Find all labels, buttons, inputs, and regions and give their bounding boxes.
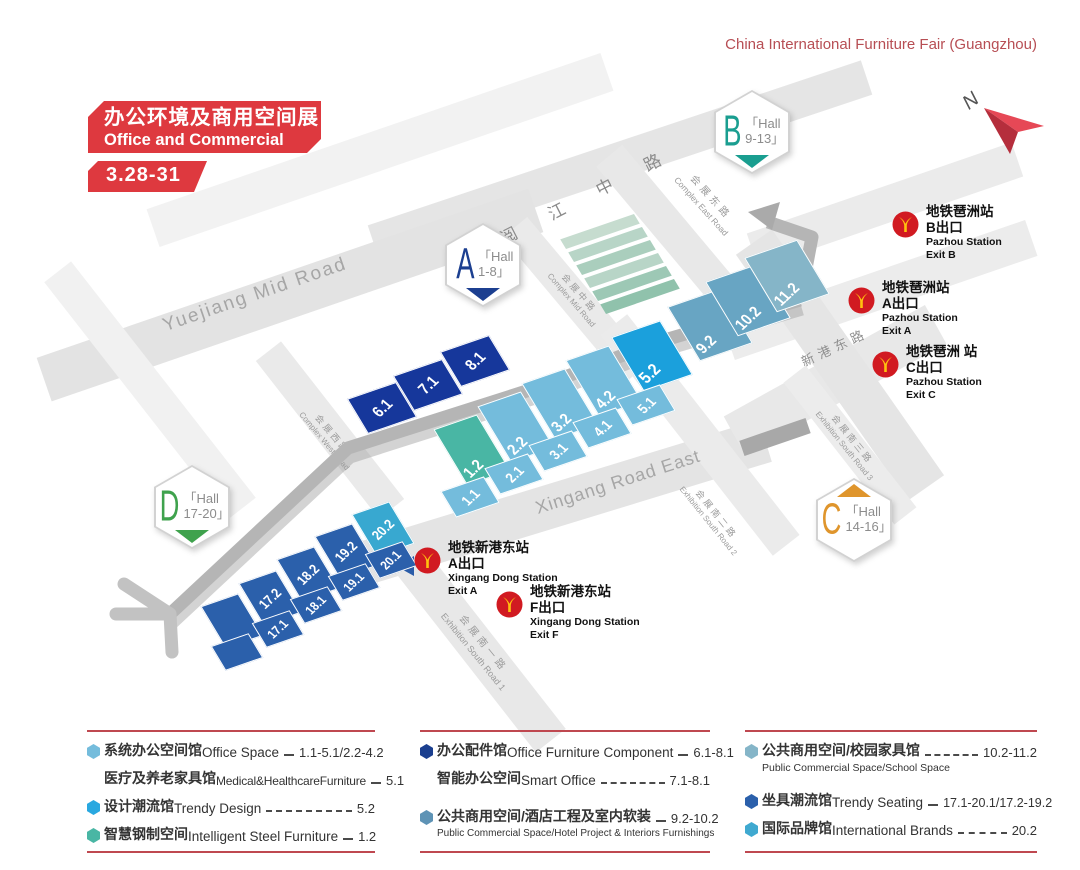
legend-row-office-space: 系统办公空间馆 Office Space 1.1-5.1/2.2-4.2 [87,740,375,760]
legend-leader [958,832,1007,834]
badge-arrow-down-icon [735,155,769,168]
station-pazhou-exit-c: 地铁琶洲 站 C出口 Pazhou Station Exit C [872,344,982,402]
station-pazhou-exit-b: 地铁琶洲站 B出口 Pazhou Station Exit B [892,204,1002,262]
legend-value: 5.2 [357,801,375,816]
legend-leader [601,782,665,784]
legend-bullet-icon [87,828,100,843]
hall-range-a: 「Hall1-8」 [478,250,513,280]
hall-range-c: 「Hall14-16」 [845,505,890,535]
legend-value: 1.1-5.1/2.2-4.2 [299,745,384,760]
station-exit-en: Exit B [926,249,1002,262]
legend-bullet-icon [745,744,758,759]
legend-row-public-hotel: 公共商用空间/酒店工程及室内软装 9.2-10.2 [420,806,710,826]
legend-value: 6.1-8.1 [693,745,733,760]
hall-letter-d: D [160,482,178,531]
north-compass: N [952,88,1037,158]
station-exit-zh: A出口 [448,556,558,572]
station-exit-zh: B出口 [926,220,1002,236]
legend-bullet-icon [420,810,433,825]
station-pazhou-exit-a: 地铁琶洲站 A出口 Pazhou Station Exit A [848,280,958,338]
legend-label-zh: 智能办公空间 [437,768,521,788]
legend-leader [928,804,938,806]
legend-row-international-brands: 国际品牌馆 International Brands 20.2 [745,818,1037,838]
legend-value: 5.1 [386,773,404,788]
legend-label-zh: 办公配件馆 [437,740,507,760]
badge-arrow-up-icon [837,484,871,497]
legend-value: 20.2 [1012,823,1037,838]
legend-row-medical: 医疗及养老家具馆 Medical&HealthcareFurniture 5.1 [104,768,375,788]
legend-leader [284,754,294,756]
legend-label-en: Trendy Design [174,801,261,816]
legend-leader [925,754,978,756]
legend-label-zh: 坐具潮流馆 [762,790,832,810]
legend-value: 10.2-11.2 [983,745,1037,760]
hall-block-unlabeled-1 [211,633,264,671]
legend-label-en: Smart Office [521,773,596,788]
station-name-en: Pazhou Station [882,312,958,325]
station-name-zh: 地铁新港东站 [530,584,640,600]
station-exit-zh: A出口 [882,296,958,312]
legend-row-smart-office: 智能办公空间 Smart Office 7.1-8.1 [437,768,710,788]
legend-label-zh: 智慧钢制空间 [104,824,188,844]
legend-column-2: 办公配件馆 Office Furniture Component 6.1-8.1… [420,730,710,853]
hall-badge-b: B 「Hall9-13」 [714,90,790,174]
metro-logo-icon [872,351,899,378]
station-exit-zh: F出口 [530,600,640,616]
legend-label-zh: 系统办公空间馆 [104,740,202,760]
legend-row-school-space: 公共商用空间/校园家具馆 10.2-11.2 [745,740,1037,760]
legend-column-1: 系统办公空间馆 Office Space 1.1-5.1/2.2-4.2 医疗及… [87,730,375,853]
legend-leader [656,820,666,822]
station-exit-zh: C出口 [906,360,982,376]
hall-letter-c: C [822,495,840,544]
legend-value: 9.2-10.2 [671,811,719,826]
legend-column-3: 公共商用空间/校园家具馆 10.2-11.2 Public Commercial… [745,730,1037,853]
station-name-zh: 地铁琶洲站 [926,204,1002,220]
north-arrow-icon [966,96,1051,166]
date-banner: 3.28-31 [88,161,207,192]
legend-bullet-icon [420,744,433,759]
hall-badge-a: A 「Hall1-8」 [445,223,521,307]
legend-leader [343,838,353,840]
hall-letter-a: A [456,240,473,289]
hall-range-b: 「Hall9-13」 [745,117,784,147]
station-name-zh: 地铁琶洲 站 [906,344,982,360]
venue-map-page: 阅 江 中 路 Yuejiang Mid Road Xingang Road E… [0,0,1080,870]
legend-label-en: Trendy Seating [832,795,923,810]
legend-label-zh: 公共商用空间/酒店工程及室内软装 [437,806,651,826]
station-exit-en: Exit A [882,325,958,338]
legend-subtitle-en: Public Commercial Space/Hotel Project & … [437,828,710,839]
station-exit-en: Exit C [906,389,982,402]
legend-value: 17.1-20.1/17.2-19.2 [943,796,1052,810]
hall-range-d: 「Hall17-20」 [183,492,228,522]
legend-bullet-icon [87,800,100,815]
station-name-zh: 地铁新港东站 [448,540,558,556]
legend-leader [371,782,381,784]
legend-label-en: Office Space [202,745,279,760]
metro-logo-icon [414,547,441,574]
legend-label-en: Medical&HealthcareFurniture [216,774,366,788]
station-name-zh: 地铁琶洲站 [882,280,958,296]
metro-logo-icon [848,287,875,314]
hall-badge-c: C 「Hall14-16」 [816,478,892,562]
legend-subtitle-en: Public Commercial Space/School Space [762,762,1037,774]
legend-row-office-component: 办公配件馆 Office Furniture Component 6.1-8.1 [420,740,710,760]
metro-logo-icon [892,211,919,238]
legend-label-zh: 医疗及养老家具馆 [104,768,216,788]
legend-label-zh: 公共商用空间/校园家具馆 [762,740,920,760]
legend-value: 1.2 [358,829,376,844]
legend-label-en: International Brands [832,823,953,838]
legend-label-en: Intelligent Steel Furniture [188,829,338,844]
badge-arrow-down-icon [175,530,209,543]
hall-badge-d: D 「Hall17-20」 [154,465,230,549]
metro-logo-icon [496,591,523,618]
station-name-en: Xingang Dong Station [530,616,640,629]
legend-row-trendy-design: 设计潮流馆 Trendy Design 5.2 [87,796,375,816]
legend-value: 7.1-8.1 [670,773,710,788]
exhibition-banner: 办公环境及商用空间展 Office and Commercial Space [88,101,321,153]
legend-row-trendy-seating: 坐具潮流馆 Trendy Seating 17.1-20.1/17.2-19.2 [745,790,1037,810]
legend-row-intelligent-steel: 智慧钢制空间 Intelligent Steel Furniture 1.2 [87,824,375,844]
hall-letter-b: B [723,107,740,156]
legend-bullet-icon [745,822,758,837]
legend-label-en: Office Furniture Component [507,745,673,760]
legend-bullet-icon [87,744,100,759]
legend-leader [678,754,688,756]
badge-arrow-down-icon [466,288,500,301]
legend-leader [266,810,352,812]
legend-bullet-icon [745,794,758,809]
legend-label-zh: 设计潮流馆 [104,796,174,816]
station-name-en: Pazhou Station [906,376,982,389]
station-name-en: Pazhou Station [926,236,1002,249]
station-xingangdong-exit-f: 地铁新港东站 F出口 Xingang Dong Station Exit F [496,584,640,642]
station-exit-en: Exit F [530,629,640,642]
fair-title: China International Furniture Fair (Guan… [725,36,1037,53]
banner-title-zh: 办公环境及商用空间展 [104,106,321,130]
legend-label-zh: 国际品牌馆 [762,818,832,838]
